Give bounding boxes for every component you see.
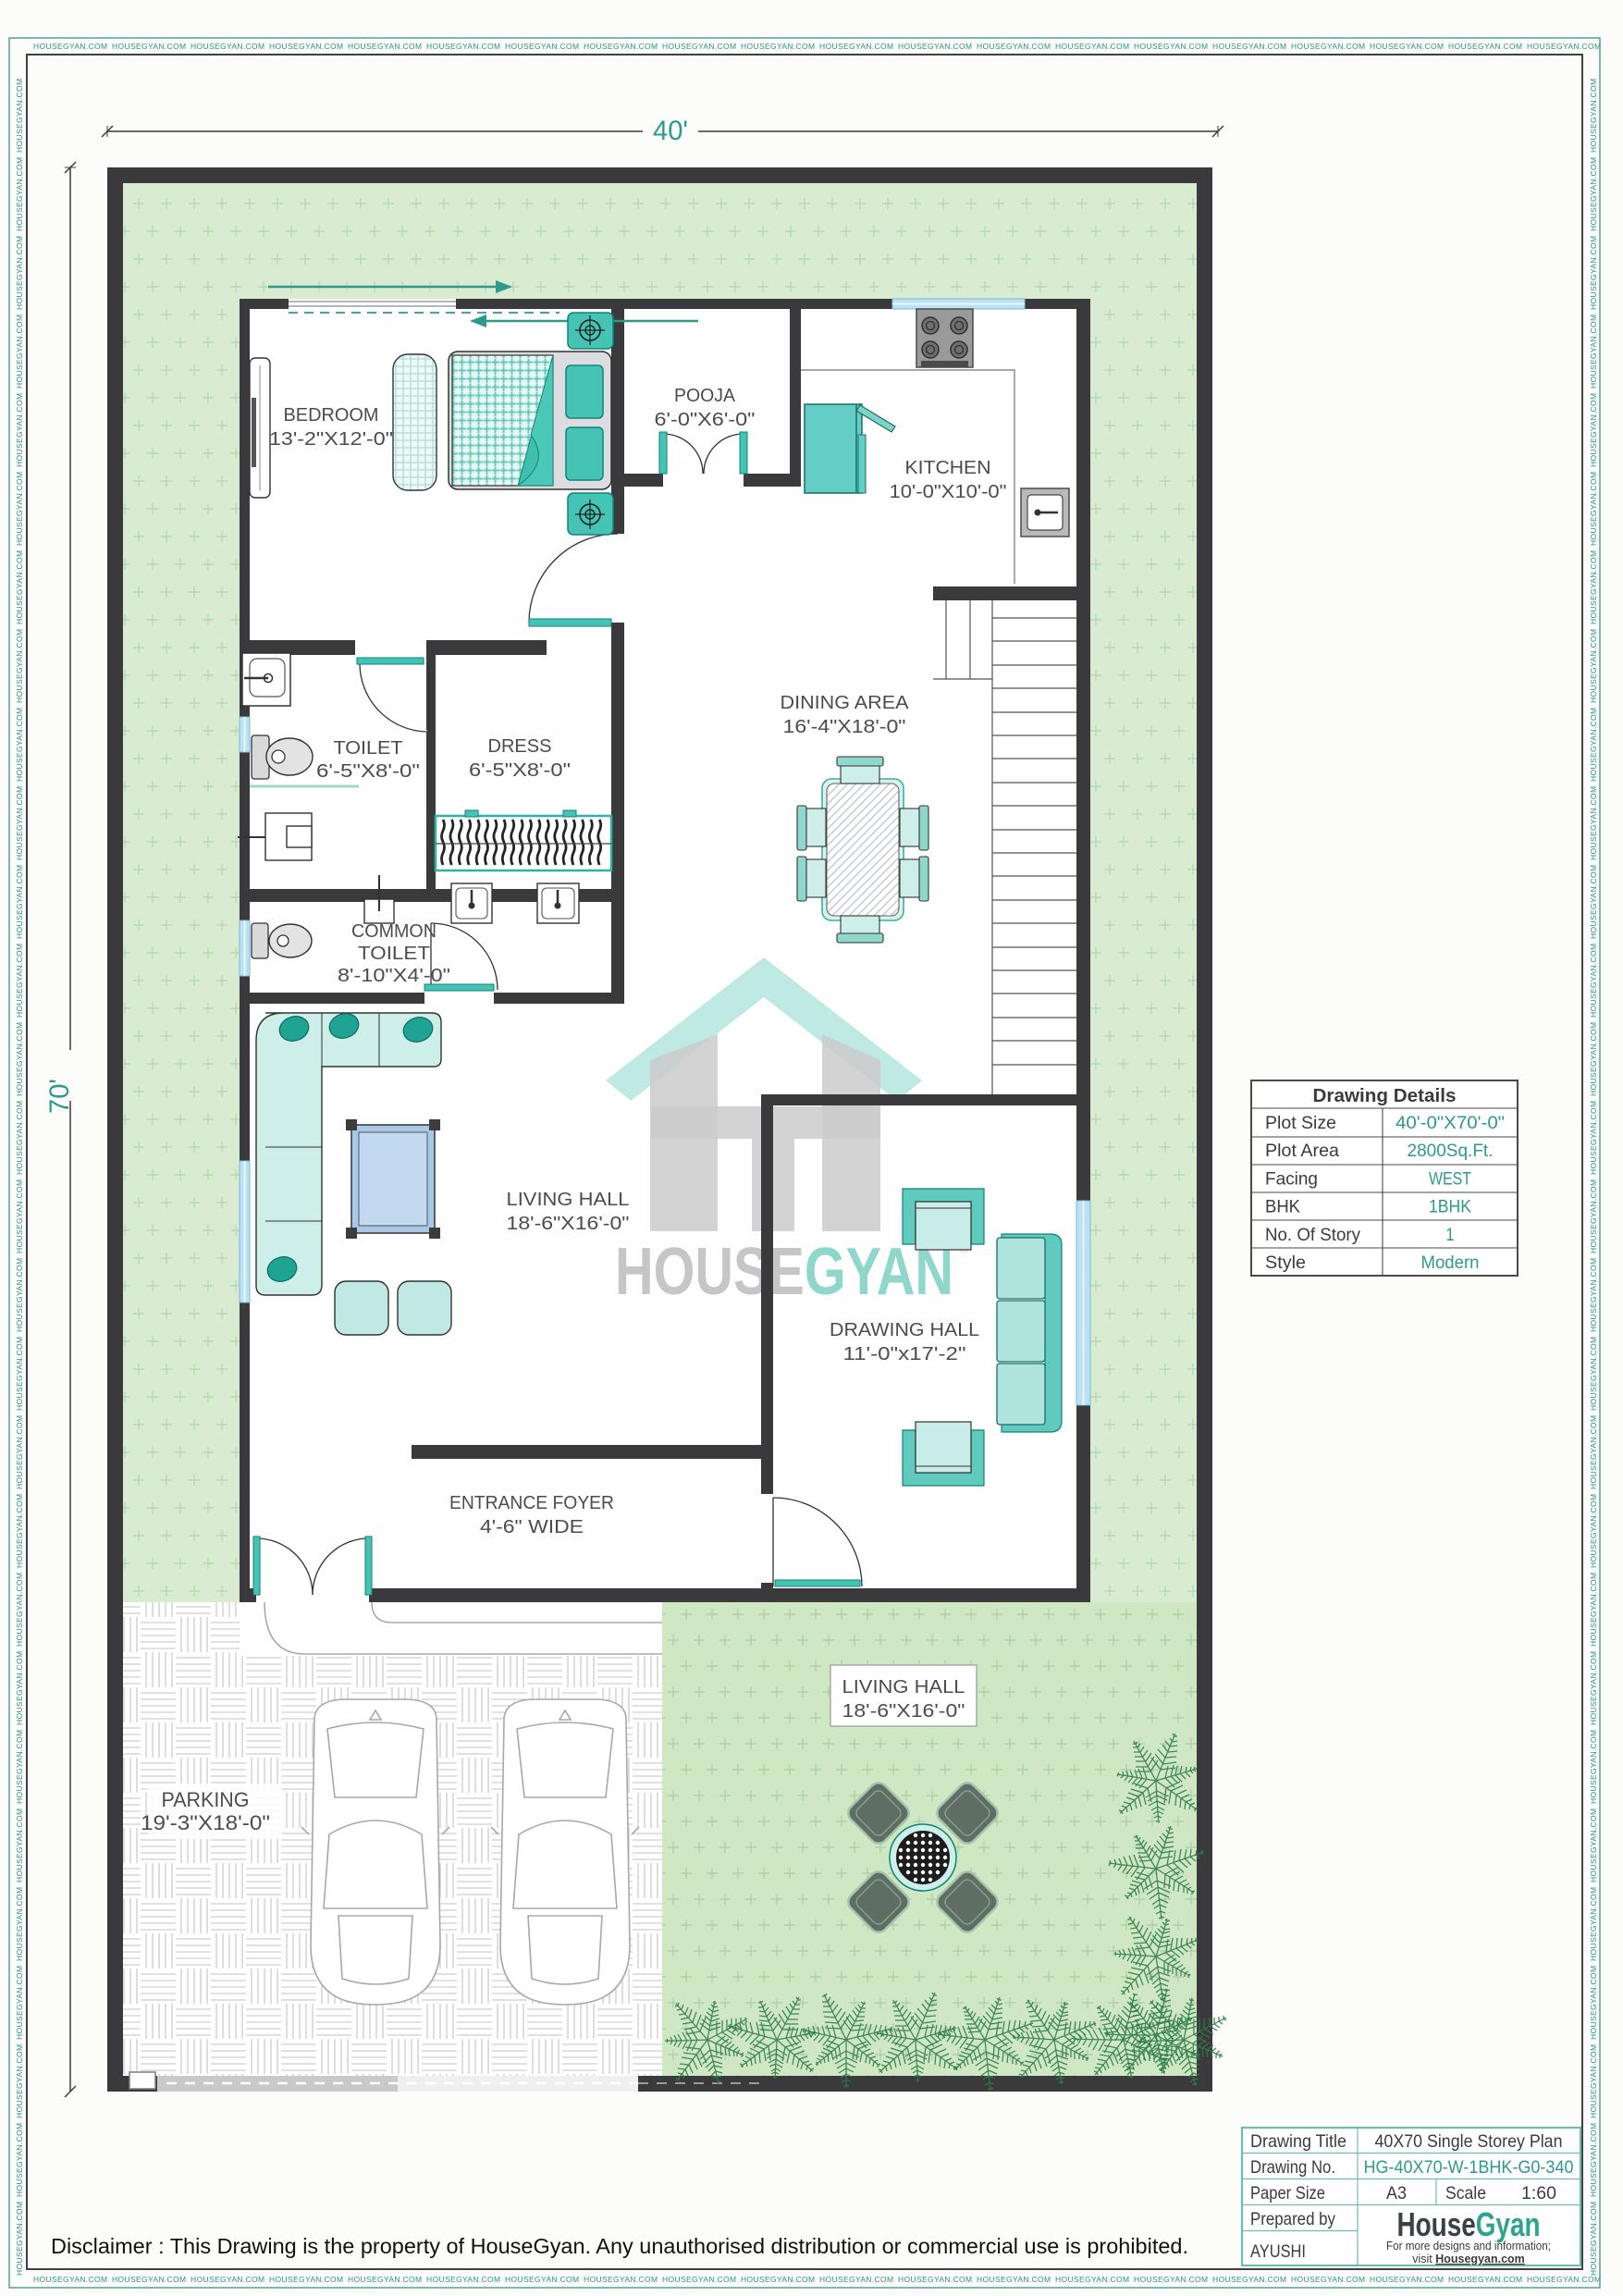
svg-text:HOUSEGYAN.COM: HOUSEGYAN.COM — [1589, 1337, 1598, 1411]
svg-text:Drawing No.: Drawing No. — [1250, 2157, 1335, 2178]
svg-text:HOUSEGYAN.COM: HOUSEGYAN.COM — [1589, 393, 1598, 467]
svg-text:HOUSEGYAN.COM: HOUSEGYAN.COM — [15, 786, 24, 860]
svg-text:6'-5"X8'-0": 6'-5"X8'-0" — [316, 760, 420, 782]
svg-text:DRAWING HALL: DRAWING HALL — [830, 1319, 979, 1340]
svg-text:HOUSEGYAN.COM: HOUSEGYAN.COM — [1589, 865, 1598, 939]
svg-text:19'-3"X18'-0": 19'-3"X18'-0" — [141, 1811, 270, 1834]
svg-text:HOUSEGYAN.COM: HOUSEGYAN.COM — [191, 42, 264, 51]
svg-text:Disclaimer : This Drawing is t: Disclaimer : This Drawing is the propert… — [51, 2234, 1188, 2258]
svg-text:HOUSEGYAN.COM: HOUSEGYAN.COM — [15, 393, 24, 467]
svg-text:HouseGyan: HouseGyan — [1397, 2205, 1541, 2243]
svg-text:2800Sq.Ft.: 2800Sq.Ft. — [1408, 1141, 1494, 1161]
svg-text:HOUSEGYAN.COM: HOUSEGYAN.COM — [1589, 236, 1598, 310]
svg-text:HOUSEGYAN.COM: HOUSEGYAN.COM — [15, 1179, 24, 1253]
svg-text:1: 1 — [1446, 1225, 1455, 1245]
svg-text:HOUSEGYAN.COM: HOUSEGYAN.COM — [191, 2275, 264, 2284]
svg-text:HOUSEGYAN.COM: HOUSEGYAN.COM — [15, 1651, 24, 1725]
svg-text:DINING AREA: DINING AREA — [781, 692, 909, 713]
svg-text:HOUSEGYAN.COM: HOUSEGYAN.COM — [1589, 550, 1598, 624]
svg-text:HOUSEGYAN.COM: HOUSEGYAN.COM — [348, 42, 422, 51]
svg-text:10'-0"X10'-0": 10'-0"X10'-0" — [890, 481, 1007, 502]
svg-text:HOUSEGYAN.COM: HOUSEGYAN.COM — [15, 2044, 24, 2118]
svg-text:Drawing Details: Drawing Details — [1313, 1085, 1457, 1106]
svg-text:BEDROOM: BEDROOM — [284, 404, 379, 426]
svg-text:HOUSEGYAN.COM: HOUSEGYAN.COM — [1589, 2202, 1598, 2276]
svg-text:HOUSEGYAN.COM: HOUSEGYAN.COM — [1589, 2044, 1598, 2118]
svg-text:HOUSEGYAN.COM: HOUSEGYAN.COM — [741, 42, 815, 51]
svg-text:HOUSEGYAN.COM: HOUSEGYAN.COM — [15, 1730, 24, 1804]
svg-text:HOUSEGYAN.COM: HOUSEGYAN.COM — [1589, 1808, 1598, 1882]
svg-text:HOUSEGYAN.COM: HOUSEGYAN.COM — [269, 2275, 343, 2284]
svg-text:HOUSEGYAN.COM: HOUSEGYAN.COM — [977, 42, 1051, 51]
svg-text:HOUSEGYAN.COM: HOUSEGYAN.COM — [33, 42, 107, 51]
svg-text:Style: Style — [1265, 1253, 1306, 1273]
svg-text:HOUSEGYAN.COM: HOUSEGYAN.COM — [1370, 42, 1444, 51]
svg-text:HOUSEGYAN.COM: HOUSEGYAN.COM — [505, 2275, 579, 2284]
svg-text:Facing: Facing — [1265, 1168, 1318, 1189]
svg-text:8'-10"X4'-0": 8'-10"X4'-0" — [338, 965, 450, 986]
svg-text:HOUSEGYAN.COM: HOUSEGYAN.COM — [741, 2275, 815, 2284]
svg-text:HOUSEGYAN.COM: HOUSEGYAN.COM — [1589, 1022, 1598, 1096]
svg-text:HOUSEGYAN.COM: HOUSEGYAN.COM — [1589, 708, 1598, 782]
svg-text:HOUSEGYAN.COM: HOUSEGYAN.COM — [15, 708, 24, 782]
svg-text:HOUSEGYAN.COM: HOUSEGYAN.COM — [1589, 1887, 1598, 1961]
svg-text:HOUSEGYAN.COM: HOUSEGYAN.COM — [662, 2275, 736, 2284]
svg-text:HOUSEGYAN.COM: HOUSEGYAN.COM — [1212, 42, 1286, 51]
svg-text:HOUSEGYAN.COM: HOUSEGYAN.COM — [112, 2275, 186, 2284]
svg-text:6'-0"X6'-0": 6'-0"X6'-0" — [655, 409, 756, 430]
svg-text:HOUSEGYAN.COM: HOUSEGYAN.COM — [662, 42, 736, 51]
svg-text:HOUSEGYAN.COM: HOUSEGYAN.COM — [819, 42, 893, 51]
svg-text:HOUSEGYAN.COM: HOUSEGYAN.COM — [1589, 472, 1598, 546]
svg-text:HOUSEGYAN.COM: HOUSEGYAN.COM — [15, 1808, 24, 1882]
svg-text:HOUSEGYAN.COM: HOUSEGYAN.COM — [15, 2202, 24, 2276]
svg-text:BHK: BHK — [1265, 1197, 1300, 1217]
svg-text:HOUSEGYAN.COM: HOUSEGYAN.COM — [1589, 1651, 1598, 1725]
svg-text:HOUSEGYAN.COM: HOUSEGYAN.COM — [15, 236, 24, 310]
svg-text:HOUSEGYAN.COM: HOUSEGYAN.COM — [1589, 944, 1598, 1018]
svg-text:HOUSEGYAN.COM: HOUSEGYAN.COM — [15, 1258, 24, 1332]
svg-text:40': 40' — [653, 116, 688, 146]
svg-text:18'-6"X16'-0": 18'-6"X16'-0" — [507, 1213, 630, 1234]
svg-text:AYUSHI: AYUSHI — [1250, 2241, 1306, 2262]
svg-text:HOUSEGYAN.COM: HOUSEGYAN.COM — [15, 1101, 24, 1175]
svg-text:Paper Size: Paper Size — [1250, 2183, 1325, 2203]
svg-text:TOILET: TOILET — [334, 737, 404, 759]
svg-text:16'-4"X18'-0": 16'-4"X18'-0" — [783, 716, 906, 737]
svg-text:HOUSEGYAN.COM: HOUSEGYAN.COM — [15, 157, 24, 231]
svg-text:18'-6"X16'-0": 18'-6"X16'-0" — [842, 1700, 965, 1722]
svg-text:HOUSEGYAN.COM: HOUSEGYAN.COM — [269, 42, 343, 51]
svg-text:HOUSEGYAN.COM: HOUSEGYAN.COM — [1291, 2275, 1365, 2284]
svg-text:40X70 Single Storey Plan: 40X70 Single Storey Plan — [1375, 2131, 1563, 2152]
svg-text:HOUSEGYAN.COM: HOUSEGYAN.COM — [819, 2275, 893, 2284]
svg-text:LIVING HALL: LIVING HALL — [842, 1676, 965, 1697]
svg-text:POOJA: POOJA — [674, 385, 735, 406]
svg-text:HOUSEGYAN.COM: HOUSEGYAN.COM — [15, 2123, 24, 2197]
svg-text:HOUSEGYAN: HOUSEGYAN — [615, 1235, 953, 1309]
svg-text:HOUSEGYAN.COM: HOUSEGYAN.COM — [1212, 2275, 1286, 2284]
svg-text:HOUSEGYAN.COM: HOUSEGYAN.COM — [15, 1887, 24, 1961]
svg-text:6'-5"X8'-0": 6'-5"X8'-0" — [469, 759, 571, 781]
svg-text:Plot Area: Plot Area — [1265, 1141, 1339, 1161]
svg-text:HOUSEGYAN.COM: HOUSEGYAN.COM — [1527, 42, 1601, 51]
svg-text:HG-40X70-W-1BHK-G0-340: HG-40X70-W-1BHK-G0-340 — [1364, 2157, 1574, 2178]
svg-text:HOUSEGYAN.COM: HOUSEGYAN.COM — [15, 1966, 24, 2040]
svg-text:DRESS: DRESS — [488, 735, 552, 757]
svg-text:HOUSEGYAN.COM: HOUSEGYAN.COM — [426, 2275, 500, 2284]
svg-text:ENTRANCE FOYER: ENTRANCE FOYER — [449, 1492, 614, 1513]
svg-text:1:60: 1:60 — [1521, 2183, 1556, 2203]
svg-text:HOUSEGYAN.COM: HOUSEGYAN.COM — [1589, 157, 1598, 231]
svg-text:HOUSEGYAN.COM: HOUSEGYAN.COM — [977, 2275, 1051, 2284]
svg-text:HOUSEGYAN.COM: HOUSEGYAN.COM — [1134, 42, 1208, 51]
svg-text:HOUSEGYAN.COM: HOUSEGYAN.COM — [1448, 2275, 1522, 2284]
svg-text:HOUSEGYAN.COM: HOUSEGYAN.COM — [15, 1573, 24, 1647]
svg-text:KITCHEN: KITCHEN — [905, 457, 991, 478]
svg-text:HOUSEGYAN.COM: HOUSEGYAN.COM — [112, 42, 186, 51]
svg-text:HOUSEGYAN.COM: HOUSEGYAN.COM — [898, 42, 972, 51]
svg-text:HOUSEGYAN.COM: HOUSEGYAN.COM — [1291, 42, 1365, 51]
svg-text:Plot Size: Plot Size — [1265, 1113, 1336, 1133]
svg-text:visit Housegyan.com: visit Housegyan.com — [1412, 2253, 1525, 2265]
svg-text:PARKING: PARKING — [162, 1788, 250, 1811]
svg-text:Modern: Modern — [1421, 1253, 1480, 1273]
svg-text:HOUSEGYAN.COM: HOUSEGYAN.COM — [15, 1022, 24, 1096]
svg-text:HOUSEGYAN.COM: HOUSEGYAN.COM — [33, 2275, 107, 2284]
svg-text:LIVING HALL: LIVING HALL — [507, 1189, 630, 1210]
svg-text:TOILET: TOILET — [358, 943, 431, 964]
svg-text:HOUSEGYAN.COM: HOUSEGYAN.COM — [15, 1415, 24, 1489]
svg-text:HOUSEGYAN.COM: HOUSEGYAN.COM — [15, 550, 24, 624]
svg-text:HOUSEGYAN.COM: HOUSEGYAN.COM — [1589, 1573, 1598, 1647]
svg-text:HOUSEGYAN.COM: HOUSEGYAN.COM — [1055, 42, 1129, 51]
svg-text:HOUSEGYAN.COM: HOUSEGYAN.COM — [1589, 79, 1598, 153]
svg-text:HOUSEGYAN.COM: HOUSEGYAN.COM — [15, 944, 24, 1018]
svg-text:40'-0"X70'-0": 40'-0"X70'-0" — [1396, 1113, 1505, 1133]
svg-text:HOUSEGYAN.COM: HOUSEGYAN.COM — [15, 472, 24, 546]
svg-text:Prepared by: Prepared by — [1250, 2209, 1335, 2229]
svg-text:HOUSEGYAN.COM: HOUSEGYAN.COM — [1448, 42, 1522, 51]
svg-text:No. Of Story: No. Of Story — [1265, 1225, 1360, 1245]
svg-text:HOUSEGYAN.COM: HOUSEGYAN.COM — [1134, 2275, 1208, 2284]
svg-text:11'-0"x17'-2": 11'-0"x17'-2" — [843, 1343, 966, 1364]
svg-text:COMMON: COMMON — [351, 920, 436, 942]
svg-text:HOUSEGYAN.COM: HOUSEGYAN.COM — [1589, 1258, 1598, 1332]
svg-text:70': 70' — [44, 1079, 75, 1114]
svg-text:HOUSEGYAN.COM: HOUSEGYAN.COM — [15, 1337, 24, 1411]
svg-text:4'-6" WIDE: 4'-6" WIDE — [480, 1516, 584, 1537]
svg-text:13'-2"X12'-0": 13'-2"X12'-0" — [269, 428, 393, 450]
svg-text:HOUSEGYAN.COM: HOUSEGYAN.COM — [1589, 1101, 1598, 1175]
svg-text:HOUSEGYAN.COM: HOUSEGYAN.COM — [898, 2275, 972, 2284]
svg-text:HOUSEGYAN.COM: HOUSEGYAN.COM — [1589, 629, 1598, 703]
svg-text:HOUSEGYAN.COM: HOUSEGYAN.COM — [584, 2275, 658, 2284]
svg-text:HOUSEGYAN.COM: HOUSEGYAN.COM — [505, 42, 579, 51]
svg-text:HOUSEGYAN.COM: HOUSEGYAN.COM — [15, 79, 24, 153]
svg-text:A3: A3 — [1386, 2183, 1407, 2203]
svg-text:1BHK: 1BHK — [1429, 1197, 1471, 1217]
svg-text:HOUSEGYAN.COM: HOUSEGYAN.COM — [1589, 1415, 1598, 1489]
svg-text:HOUSEGYAN.COM: HOUSEGYAN.COM — [1589, 1966, 1598, 2040]
svg-text:HOUSEGYAN.COM: HOUSEGYAN.COM — [15, 629, 24, 703]
svg-text:HOUSEGYAN.COM: HOUSEGYAN.COM — [426, 42, 500, 51]
svg-text:For more designs and informati: For more designs and information; — [1386, 2240, 1551, 2253]
svg-text:HOUSEGYAN.COM: HOUSEGYAN.COM — [1370, 2275, 1444, 2284]
svg-text:HOUSEGYAN.COM: HOUSEGYAN.COM — [15, 1494, 24, 1568]
svg-text:HOUSEGYAN.COM: HOUSEGYAN.COM — [348, 2275, 422, 2284]
svg-text:HOUSEGYAN.COM: HOUSEGYAN.COM — [1589, 1730, 1598, 1804]
svg-text:HOUSEGYAN.COM: HOUSEGYAN.COM — [1589, 1179, 1598, 1253]
svg-text:HOUSEGYAN.COM: HOUSEGYAN.COM — [15, 865, 24, 939]
svg-text:Drawing Title: Drawing Title — [1250, 2131, 1346, 2152]
svg-text:HOUSEGYAN.COM: HOUSEGYAN.COM — [1589, 2123, 1598, 2197]
svg-text:HOUSEGYAN.COM: HOUSEGYAN.COM — [1055, 2275, 1129, 2284]
svg-text:HOUSEGYAN.COM: HOUSEGYAN.COM — [1589, 315, 1598, 389]
svg-text:HOUSEGYAN.COM: HOUSEGYAN.COM — [1589, 786, 1598, 860]
svg-text:HOUSEGYAN.COM: HOUSEGYAN.COM — [1589, 1494, 1598, 1568]
svg-text:WEST: WEST — [1429, 1168, 1471, 1189]
svg-text:Scale: Scale — [1445, 2183, 1486, 2203]
svg-text:HOUSEGYAN.COM: HOUSEGYAN.COM — [15, 315, 24, 389]
svg-text:HOUSEGYAN.COM: HOUSEGYAN.COM — [584, 42, 658, 51]
